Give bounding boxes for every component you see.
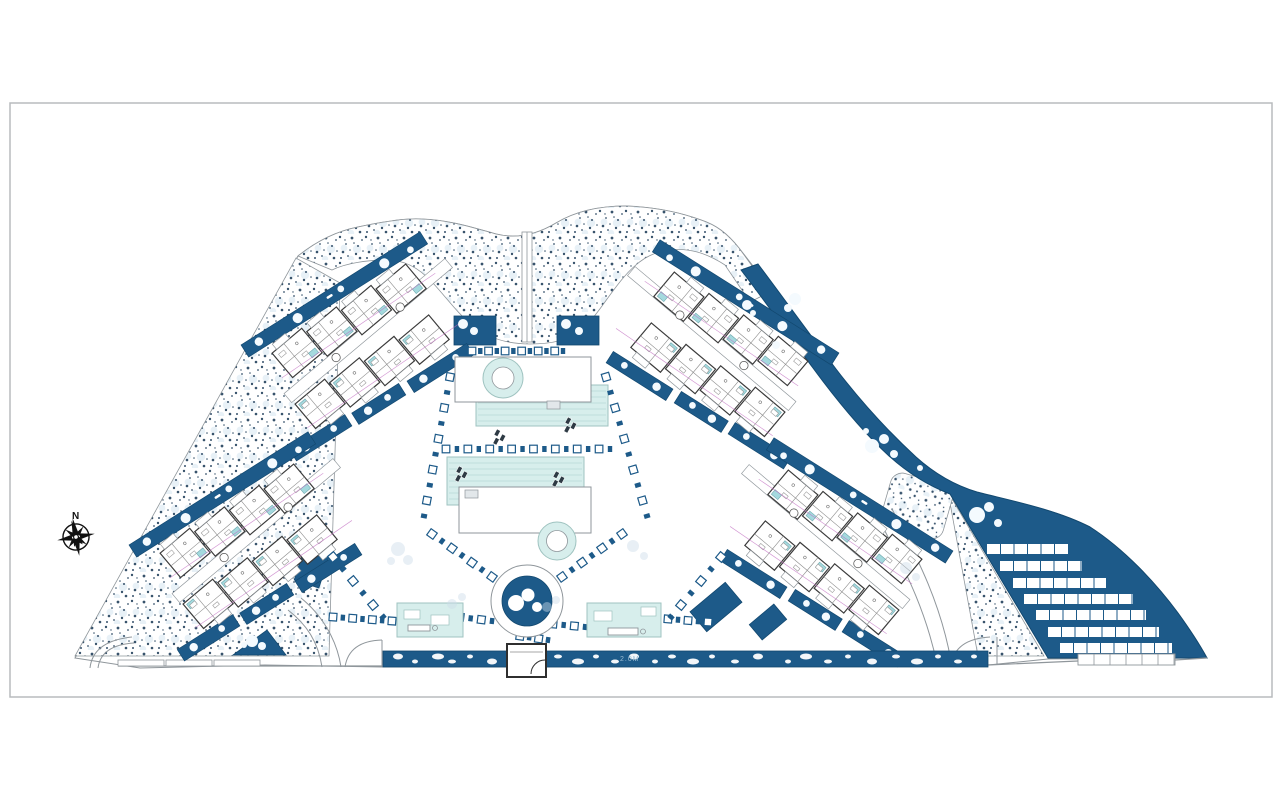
canopy-circle	[912, 573, 920, 581]
canopy-circle	[391, 542, 405, 556]
canopy-circle	[447, 599, 457, 609]
canopy-circle	[627, 540, 639, 552]
site-plan-svg: N 2.0M	[0, 0, 1280, 800]
canopy-circle	[640, 552, 648, 560]
canopy-circle	[387, 557, 395, 565]
wall-segment	[166, 660, 212, 666]
gatehouse	[507, 644, 546, 677]
canopy-circle	[900, 562, 912, 574]
entry-road-strip	[383, 651, 988, 667]
site-plan-page: N 2.0M	[0, 0, 1280, 800]
wall-segment	[118, 660, 164, 666]
canopy-circle	[542, 602, 552, 612]
canopy-circle	[458, 593, 466, 601]
canopy-circle	[552, 596, 560, 604]
upper-pool	[455, 357, 608, 426]
canopy-circle	[403, 555, 413, 565]
site-plan-scene	[75, 206, 1207, 692]
north-label: N	[72, 511, 79, 522]
pavilion-right	[587, 603, 661, 637]
road-width-annotation: 2.0M	[620, 656, 640, 663]
wall-segment	[214, 660, 260, 666]
